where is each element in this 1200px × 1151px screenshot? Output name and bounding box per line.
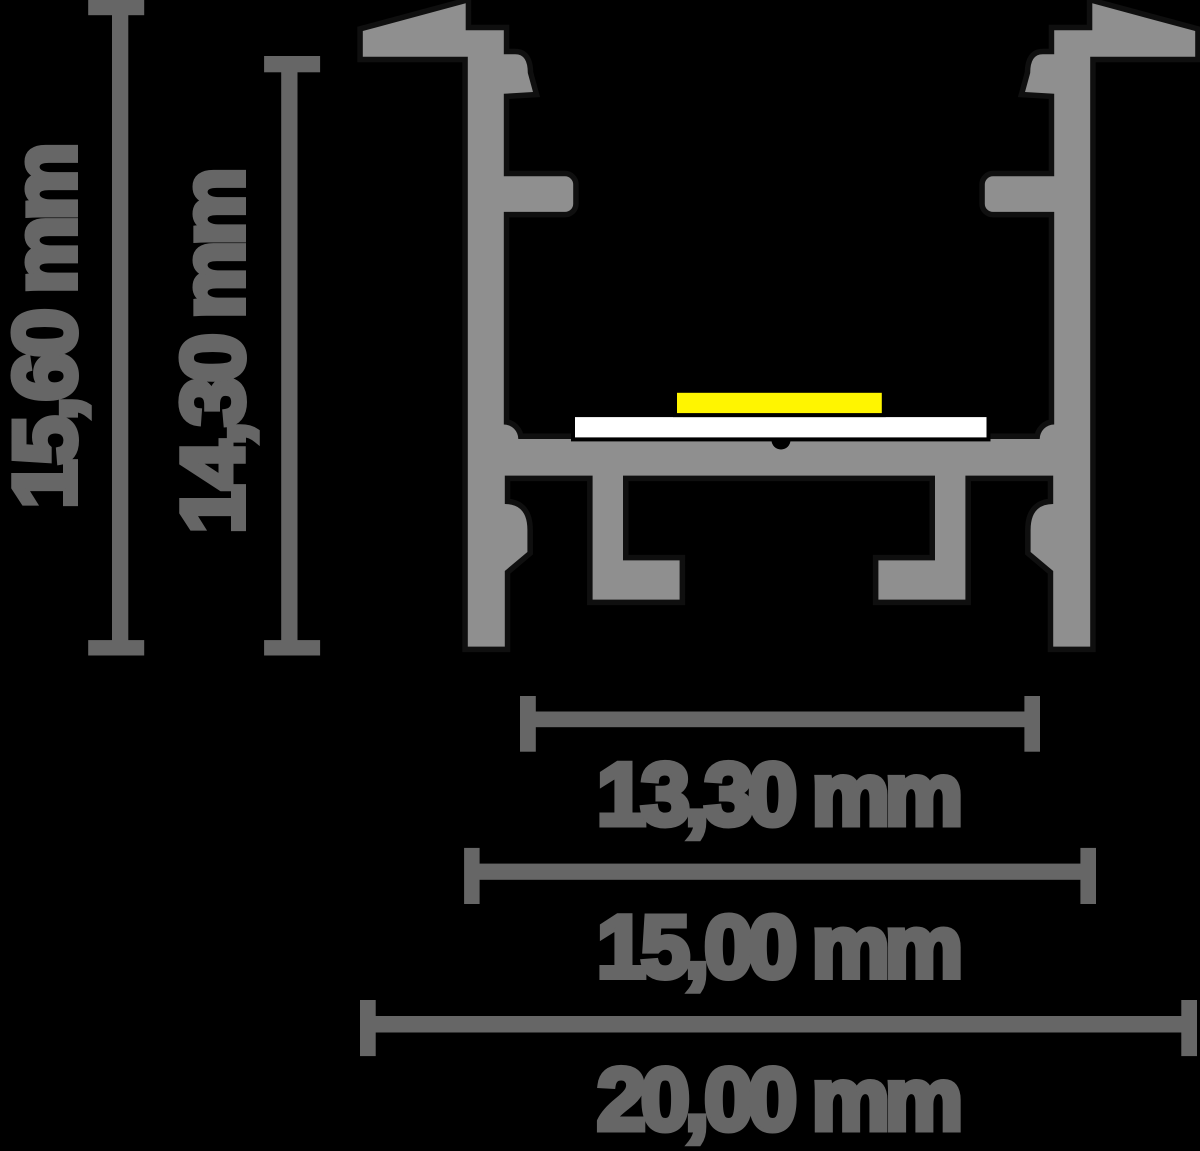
svg-text:14,30 mm: 14,30 mm [163, 172, 262, 533]
svg-text:15,60 mm: 15,60 mm [0, 147, 94, 508]
svg-text:15,00 mm: 15,00 mm [597, 897, 958, 996]
svg-text:20,00 mm: 20,00 mm [597, 1050, 958, 1149]
svg-text:13,30 mm: 13,30 mm [597, 745, 958, 844]
